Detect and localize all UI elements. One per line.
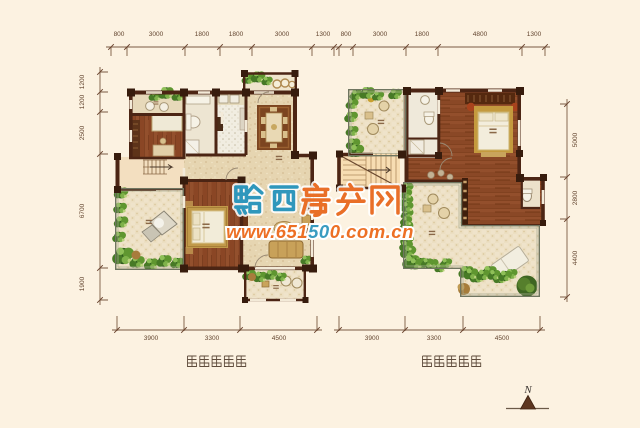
- svg-text:3300: 3300: [427, 335, 442, 342]
- svg-text:3000: 3000: [373, 31, 388, 38]
- svg-text:3000: 3000: [149, 31, 164, 38]
- svg-text:www.651500.com.cn: www.651500.com.cn: [226, 221, 414, 242]
- svg-text:N: N: [523, 384, 532, 396]
- svg-text:800: 800: [341, 31, 352, 38]
- svg-text:1200: 1200: [79, 94, 86, 109]
- svg-text:5000: 5000: [572, 132, 579, 147]
- svg-text:1800: 1800: [229, 31, 244, 38]
- svg-text:3300: 3300: [205, 335, 220, 342]
- svg-text:3000: 3000: [275, 31, 290, 38]
- svg-text:6700: 6700: [79, 203, 86, 218]
- svg-text:1300: 1300: [316, 31, 331, 38]
- svg-text:3900: 3900: [144, 335, 159, 342]
- svg-text:4500: 4500: [495, 335, 510, 342]
- svg-text:2500: 2500: [79, 125, 86, 140]
- svg-text:3900: 3900: [365, 335, 380, 342]
- svg-text:4400: 4400: [572, 250, 579, 265]
- svg-text:1900: 1900: [79, 276, 86, 291]
- svg-text:1300: 1300: [527, 31, 542, 38]
- svg-text:1800: 1800: [415, 31, 430, 38]
- svg-text:1800: 1800: [195, 31, 210, 38]
- svg-text:800: 800: [114, 31, 125, 38]
- svg-text:2800: 2800: [572, 190, 579, 205]
- svg-text:4500: 4500: [272, 335, 287, 342]
- svg-text:1200: 1200: [79, 74, 86, 89]
- svg-text:4800: 4800: [473, 31, 488, 38]
